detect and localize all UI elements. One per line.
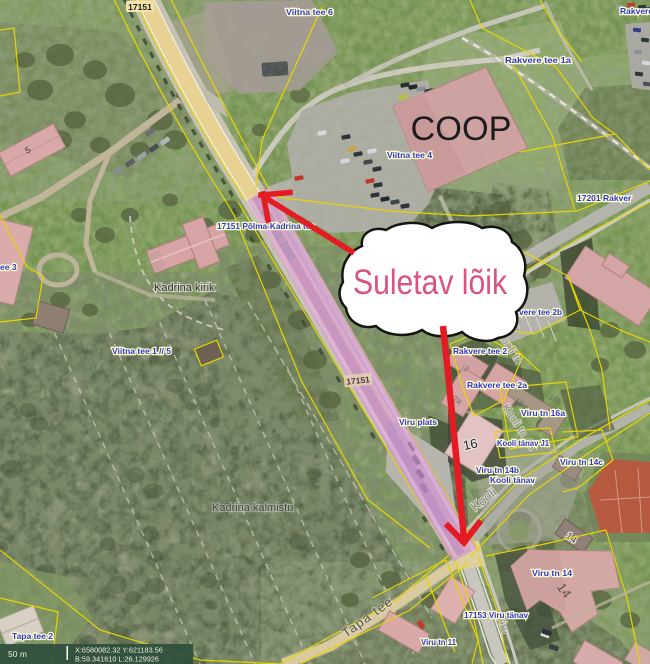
- svg-text:Viitna tee 6: Viitna tee 6: [286, 7, 333, 17]
- svg-text:B:59.341610 L:26.129926: B:59.341610 L:26.129926: [75, 655, 159, 664]
- svg-text:Viru tn 16a: Viru tn 16a: [521, 408, 565, 418]
- svg-text:Viru tn 14: Viru tn 14: [532, 568, 572, 578]
- svg-text:Suletav lõik: Suletav lõik: [353, 263, 507, 302]
- svg-text:50 m: 50 m: [8, 649, 27, 659]
- svg-text:Kooli tänav J1: Kooli tänav J1: [497, 438, 549, 448]
- svg-text:Rakvere tee 2a: Rakvere tee 2a: [467, 380, 527, 390]
- svg-text:X:6580082.32 Y:621183.56: X:6580082.32 Y:621183.56: [75, 646, 163, 655]
- svg-text:ee 3: ee 3: [0, 262, 17, 272]
- svg-text:Viru tn 14b: Viru tn 14b: [476, 465, 519, 475]
- svg-text:Rakvere tee 2: Rakvere tee 2: [453, 346, 507, 356]
- svg-text:17201 Rakver: 17201 Rakver: [577, 193, 632, 203]
- svg-text:Viitna tee 1 // 5: Viitna tee 1 // 5: [112, 346, 171, 356]
- svg-text:17153 Viru tänav: 17153 Viru tänav: [464, 610, 528, 620]
- svg-text:Rakvere: Rakvere: [620, 6, 650, 16]
- svg-text:COOP: COOP: [411, 110, 512, 148]
- svg-text:Rakvere tee 1a: Rakvere tee 1a: [505, 55, 571, 65]
- svg-text:Tapa tee 2: Tapa tee 2: [12, 631, 53, 641]
- svg-text:Kadrina kirik: Kadrina kirik: [154, 282, 215, 294]
- svg-text:16: 16: [462, 435, 479, 453]
- svg-text:Kadrina kalmistu: Kadrina kalmistu: [212, 502, 293, 514]
- svg-text:Kooli tänav: Kooli tänav: [490, 475, 535, 485]
- svg-text:Viru tn 14c: Viru tn 14c: [560, 457, 603, 467]
- svg-text:Viru tn 11: Viru tn 11: [421, 637, 456, 647]
- svg-text:17151: 17151: [128, 2, 152, 12]
- svg-text:Viitna tee 4: Viitna tee 4: [387, 150, 432, 160]
- svg-text:Viru plats: Viru plats: [399, 417, 437, 427]
